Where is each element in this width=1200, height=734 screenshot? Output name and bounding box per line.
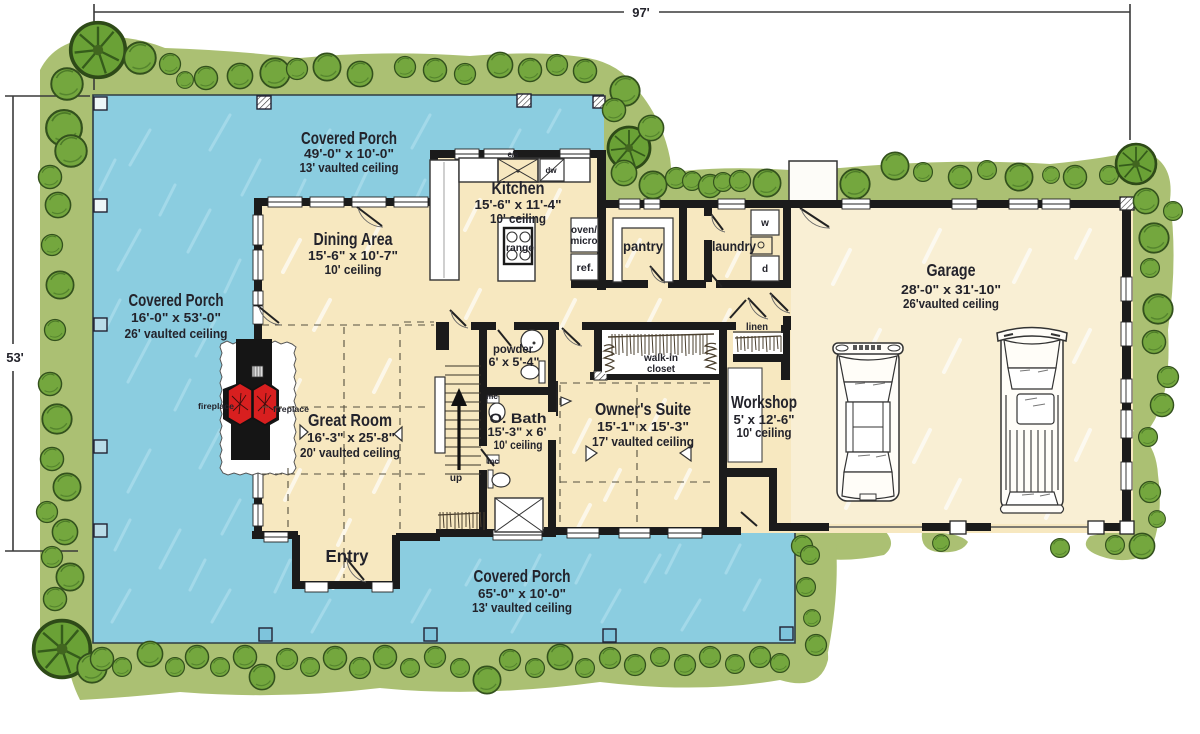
svg-text:ref.: ref.	[577, 263, 594, 274]
svg-text:fireplace: fireplace	[198, 402, 235, 411]
svg-text:97': 97'	[632, 5, 650, 20]
svg-text:53': 53'	[6, 350, 24, 365]
svg-text:28'-0" x 31'-10": 28'-0" x 31'-10"	[901, 282, 1001, 297]
svg-text:16'-3" x 25'-8": 16'-3" x 25'-8"	[307, 430, 395, 445]
svg-text:17' vaulted ceiling: 17' vaulted ceiling	[592, 434, 694, 449]
svg-text:e/s: e/s	[507, 150, 519, 159]
svg-text:15'-6" x 10'-7": 15'-6" x 10'-7"	[308, 248, 398, 263]
svg-text:O. Bath: O. Bath	[490, 410, 547, 426]
svg-text:13' vaulted ceiling: 13' vaulted ceiling	[300, 160, 399, 175]
svg-text:65'-0" x 10'-0": 65'-0" x 10'-0"	[478, 586, 566, 601]
svg-text:pantry: pantry	[623, 238, 663, 254]
svg-text:laundry: laundry	[712, 238, 756, 254]
svg-text:15'-3" x 6': 15'-3" x 6'	[488, 425, 547, 439]
svg-text:Covered Porch: Covered Porch	[474, 566, 571, 586]
svg-text:10' ceiling: 10' ceiling	[737, 425, 792, 440]
svg-text:26'vaulted ceiling: 26'vaulted ceiling	[903, 296, 999, 311]
svg-text:Great Room: Great Room	[308, 410, 392, 430]
svg-text:Dining Area: Dining Area	[314, 229, 393, 249]
svg-text:w: w	[760, 218, 769, 229]
svg-text:mc: mc	[487, 457, 499, 466]
svg-text:6' x 5'-4": 6' x 5'-4"	[489, 355, 540, 369]
svg-text:micro: micro	[571, 236, 598, 247]
svg-text:20' vaulted ceiling: 20' vaulted ceiling	[300, 445, 400, 460]
svg-text:Kitchen: Kitchen	[492, 178, 545, 198]
svg-text:Entry: Entry	[326, 546, 369, 566]
svg-text:15'-1" x 15'-3": 15'-1" x 15'-3"	[597, 419, 689, 434]
svg-text:Owner's Suite: Owner's Suite	[595, 399, 691, 419]
svg-text:powder: powder	[493, 342, 533, 356]
svg-text:d: d	[762, 264, 768, 275]
svg-text:up: up	[450, 473, 462, 484]
svg-text:range: range	[506, 243, 534, 254]
svg-text:fireplace: fireplace	[273, 405, 310, 414]
svg-text:dw: dw	[545, 166, 557, 175]
svg-text:10' ceiling: 10' ceiling	[494, 438, 543, 452]
svg-text:13' vaulted ceiling: 13' vaulted ceiling	[472, 600, 572, 615]
svg-text:oven/: oven/	[571, 225, 597, 236]
svg-text:Covered Porch: Covered Porch	[301, 128, 397, 148]
svg-text:mc: mc	[486, 392, 498, 401]
svg-text:10' ceiling: 10' ceiling	[490, 211, 546, 226]
svg-text:10' ceiling: 10' ceiling	[325, 262, 382, 277]
svg-text:linen: linen	[746, 322, 768, 333]
svg-text:Garage: Garage	[927, 260, 976, 280]
svg-text:Workshop: Workshop	[731, 392, 797, 412]
svg-text:Covered Porch: Covered Porch	[129, 290, 224, 310]
svg-text:closet: closet	[647, 364, 676, 375]
svg-text:walk-in: walk-in	[643, 353, 678, 364]
svg-text:16'-0" x 53'-0": 16'-0" x 53'-0"	[131, 310, 221, 325]
svg-text:49'-0" x 10'-0": 49'-0" x 10'-0"	[304, 146, 394, 161]
svg-text:26' vaulted ceiling: 26' vaulted ceiling	[125, 326, 228, 341]
svg-text:15'-6" x 11'-4": 15'-6" x 11'-4"	[475, 197, 562, 212]
